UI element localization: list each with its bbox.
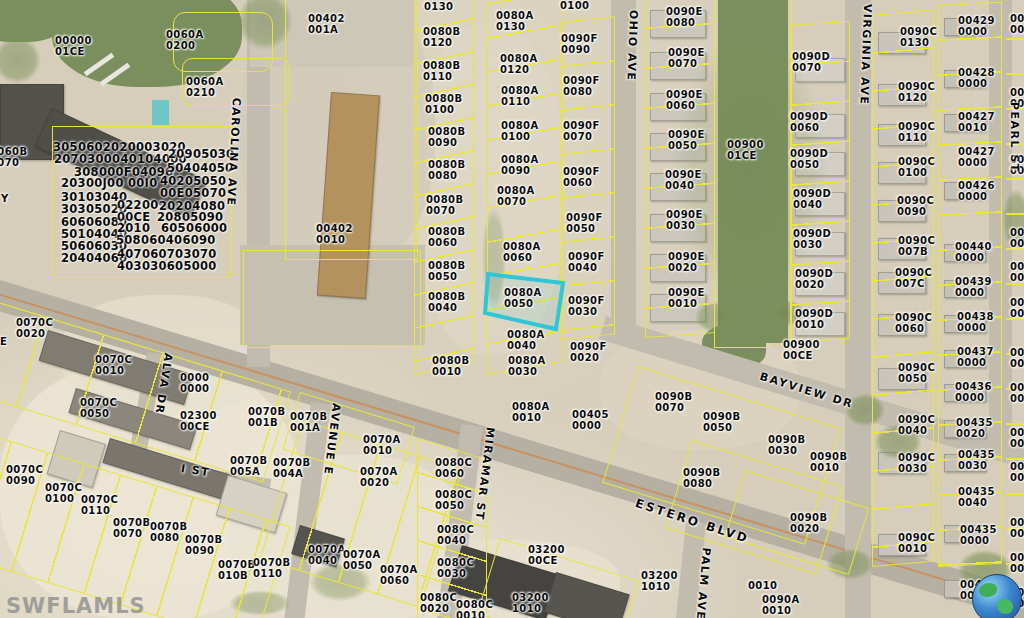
parcel-label: 0090C 007C — [895, 268, 932, 289]
parcel-label: 0080B 0100 — [425, 94, 462, 115]
parcel-label: 03200 1010 — [641, 571, 678, 592]
parcel-label: 0080B 0080 — [428, 160, 465, 181]
parcel-label: 0070B 0090 — [185, 535, 222, 556]
parcel-label: 0060A 0210 — [186, 77, 224, 98]
overlapping-parcel-number: 20905030 — [168, 148, 234, 160]
overlapping-parcel-number: 00E05070 — [160, 187, 226, 199]
parcel-label: 0070A 0010 — [363, 435, 401, 456]
parcel-label: 0090B 0070 — [655, 392, 692, 413]
parcel-label: 0070C 0090 — [6, 465, 43, 486]
parcel-label: 0130 — [424, 2, 453, 13]
parcel-label: 0070C 0050 — [80, 398, 117, 419]
parcel-label: 0080C 0030 — [437, 558, 474, 579]
overlapping-parcel-number: 20300J00 00I0 — [61, 177, 157, 189]
parcel-label: 00402 0010 — [316, 224, 353, 245]
street-label-ohio-ave: OHIO AVE — [625, 10, 640, 82]
parcel-label: 0090C 0090 — [897, 196, 934, 217]
parcel-label: 0070C 0010 — [95, 355, 132, 376]
parcel-label: 0080A 0120 — [500, 54, 538, 75]
parcel-label: 0080A 0060 — [503, 242, 541, 263]
parcel-label: 0090F 0030 — [568, 296, 605, 317]
parcel-label: 0090F 0070 — [563, 121, 600, 142]
parcel-label: 02300 00CE — [180, 411, 217, 432]
parcel-label: 0080B 0120 — [423, 27, 460, 48]
parcel-label: 0080C 0020 — [420, 593, 457, 614]
parcel-label: 00435 0020 — [956, 418, 993, 439]
parcel-label: 0090E 0080 — [666, 7, 703, 28]
parcel-map[interactable]: 00000 01CE0060A 02000060A 02100060B 0070… — [0, 0, 1024, 618]
parcel-label: 0090D 0070 — [792, 52, 830, 73]
parcel-label: 0080A 0090 — [501, 155, 539, 176]
parcel-label: 00 00 — [1010, 14, 1024, 35]
parcel-label: 0070C 0100 — [45, 483, 82, 504]
parcel-label: 0080A 0040 — [507, 330, 545, 351]
parcel-label: 0080B 0040 — [428, 292, 465, 313]
parcel-label: 0070B 005A — [230, 456, 267, 477]
parcel-label: 0100 — [560, 1, 589, 12]
parcel-label: 0090F 0060 — [563, 167, 600, 188]
parcel-label: 0080B 0110 — [423, 61, 460, 82]
globe-land-icon — [997, 599, 1013, 614]
parcel-label: 0090E 0050 — [668, 130, 705, 151]
parcel-label: 0090C 007B — [898, 236, 935, 257]
parcel-label: 0070B 001A — [290, 412, 327, 433]
parcel-label: 00429 0000 — [958, 16, 995, 37]
parcel-label: 0090D 0020 — [795, 269, 833, 290]
parcel-label: 0090D 0010 — [795, 309, 833, 330]
parcel-label: 0090C 0010 — [898, 533, 935, 554]
parcel-label: 0090A 0010 — [762, 595, 800, 616]
parcel-label: 0090C 0060 — [895, 313, 932, 334]
parcel-label: 0080A 0070 — [497, 186, 535, 207]
parcel-label: Y — [1, 194, 9, 205]
parcel-label: 0080A 0050 — [504, 288, 542, 309]
parcel-label: 00436 0000 — [955, 382, 992, 403]
parcel-label: 00427 0010 — [958, 112, 995, 133]
parcel-label: 00438 0000 — [957, 312, 994, 333]
parcel-label: 0080C 0040 — [437, 525, 474, 546]
parcel-label: 0080C 0060 — [435, 458, 472, 479]
parcel-label: 00 00 — [1010, 518, 1024, 539]
parcel-label: 0090B 0010 — [810, 452, 847, 473]
parcel-label: 00439 0000 — [955, 277, 992, 298]
parcel-label: 0080A 0110 — [501, 86, 539, 107]
parcel-label: 0090C 0100 — [898, 157, 935, 178]
parcel-label: 0090F 0040 — [568, 252, 605, 273]
parcel-label: 0090C 0110 — [898, 122, 935, 143]
parcel-label: 0090E 0030 — [666, 210, 703, 231]
overlapping-parcel-number: 403030605000 — [117, 260, 217, 272]
parcel-label: 00 00 — [1010, 262, 1024, 283]
parcel-label: 0070C 0020 — [16, 318, 53, 339]
parcel-label: 0090C 0120 — [898, 82, 935, 103]
parcel-label: 0090B 0050 — [703, 412, 740, 433]
street-label-pearl-st: PEARL ST — [1008, 102, 1021, 173]
parcel-label: 00426 0000 — [958, 181, 995, 202]
parcel-label: 0090D 0060 — [790, 112, 828, 133]
overlapping-parcel-number: 508060406090 — [116, 234, 216, 246]
parcel-label: 0010 — [748, 581, 777, 592]
parcel-label: 0070B 004A — [273, 458, 310, 479]
parcel-label: 00 00 — [1010, 383, 1024, 404]
parcel-label: 0090E 0060 — [666, 90, 703, 111]
parcel-label: 0070A 0040 — [308, 545, 346, 566]
parcel-label: 0080B 0010 — [432, 356, 469, 377]
globe-land-icon — [979, 583, 997, 597]
parcel-label: 0000 0000 — [180, 373, 209, 394]
overlapping-parcel-number: 50404050 — [167, 162, 233, 174]
parcel-label: 00405 0000 — [572, 410, 609, 431]
parcel-label: 0090C 0040 — [898, 415, 935, 436]
parcel-label: 0090F 0050 — [566, 213, 603, 234]
parcel-label: 0090E 0040 — [665, 170, 702, 191]
parcel-label: 0060A 0200 — [166, 30, 204, 51]
parcel-label: 0080C 0010 — [456, 600, 493, 618]
parcel-label: 00437 0000 — [957, 347, 994, 368]
parcel-label: 00435 0030 — [958, 450, 995, 471]
parcel-label: 00440 0000 — [955, 242, 992, 263]
parcel-label: 00 00 — [1010, 462, 1024, 483]
parcel-label: 00 00 — [1010, 348, 1024, 369]
parcel-label: 0070C 0110 — [81, 495, 118, 516]
parcel-label: 03200 1010 — [512, 593, 549, 614]
parcel-label: 0090B 0030 — [768, 435, 805, 456]
parcel-label: 0090E 0020 — [668, 252, 705, 273]
parcel-label: 0080A 0010 — [512, 402, 550, 423]
watermark: SWFLAMLS — [6, 594, 146, 618]
parcel-label: 00 00 — [1010, 228, 1024, 249]
parcel-label: 0090D 0050 — [790, 149, 828, 170]
parcel-label: 0090B 0080 — [683, 468, 720, 489]
parcel-label: 0080A 0130 — [496, 11, 534, 32]
parcel-label: 0090F 0080 — [563, 76, 600, 97]
parcel-label: 0090D 0030 — [793, 229, 831, 250]
parcel-label: 0080B 0070 — [426, 195, 463, 216]
parcel-label: 0080B 0090 — [428, 127, 465, 148]
parcel-label: 0080C 0050 — [435, 490, 472, 511]
mls-globe-logo — [972, 574, 1022, 618]
parcel-label: 0090E 0010 — [668, 288, 705, 309]
parcel-label: 00402 001A — [308, 14, 345, 35]
parcel-label: 0070A 0050 — [343, 550, 381, 571]
parcel-label: 0090B 0020 — [790, 513, 827, 534]
parcel-label: 00435 0040 — [958, 487, 995, 508]
parcel-label: 00427 0000 — [958, 147, 995, 168]
parcel-label: 0090C 0130 — [900, 27, 937, 48]
parcel-label: 0060B 0070 — [0, 147, 27, 168]
parcel-label: 00 00 — [1010, 298, 1024, 319]
parcel-label: 0080B 0050 — [428, 261, 465, 282]
parcel-label: 00900 01CE — [727, 140, 764, 161]
parcel-label: 0070B 010B — [218, 560, 255, 581]
parcel-label: 0090C 0050 — [898, 363, 935, 384]
parcel-label: 0090C 0030 — [898, 453, 935, 474]
parcel-label: 0080B 0060 — [428, 227, 465, 248]
parcel-label: 0080A 0030 — [508, 356, 546, 377]
parcel-label: 03200 00CE — [528, 545, 565, 566]
parcel-label: 0090D 0040 — [793, 189, 831, 210]
parcel-label: 0070A 0060 — [380, 565, 418, 586]
parcel-label: 0090E 0070 — [668, 48, 705, 69]
parcel-label: 0090F 0090 — [561, 34, 598, 55]
parcel-label: 0070B 0080 — [150, 522, 187, 543]
parcel-label: 00 00 — [1010, 553, 1024, 574]
parcel-label: 0070B 0110 — [253, 558, 290, 579]
parcel-label: 00900 00CE — [783, 340, 820, 361]
parcel-label: 0070B 0070 — [113, 518, 150, 539]
parcel-label: 00428 0000 — [958, 68, 995, 89]
parcel-label: 0070B 001B — [248, 407, 285, 428]
parcel-label: 00000 01CE — [55, 36, 92, 57]
parcel-label: 0070A 0020 — [360, 467, 398, 488]
parcel-label: 0090F 0020 — [570, 342, 607, 363]
parcel-label: 00435 0000 — [960, 525, 997, 546]
parcel-label: 00 00 — [1010, 428, 1024, 449]
parcel-label: E — [0, 337, 7, 348]
parcel-label: 0080A 0100 — [501, 121, 539, 142]
